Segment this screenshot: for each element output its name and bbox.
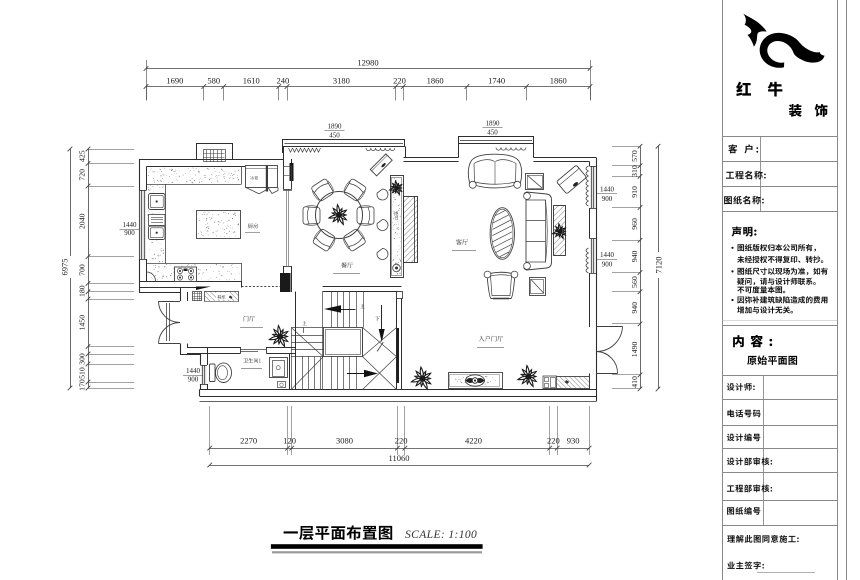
svg-text:11060: 11060: [389, 453, 410, 463]
svg-text:310: 310: [630, 165, 639, 177]
svg-text:6975: 6975: [60, 259, 70, 276]
svg-text:1860: 1860: [550, 76, 567, 86]
svg-text:3180: 3180: [333, 76, 350, 86]
svg-text:700: 700: [78, 264, 87, 276]
svg-text:450: 450: [329, 132, 340, 140]
svg-text:220: 220: [395, 436, 408, 446]
svg-text:1440: 1440: [123, 221, 138, 229]
svg-text:1610: 1610: [243, 76, 260, 86]
svg-text:1440: 1440: [600, 251, 615, 259]
svg-text:960: 960: [630, 218, 639, 230]
svg-text:1450: 1450: [78, 315, 87, 331]
svg-text:1890: 1890: [328, 123, 343, 131]
svg-text:910: 910: [630, 186, 639, 198]
svg-text:170: 170: [78, 379, 87, 391]
svg-text:580: 580: [207, 76, 220, 86]
svg-text:180: 180: [78, 285, 87, 297]
svg-text:510: 510: [78, 367, 87, 379]
svg-text:900: 900: [124, 229, 135, 237]
svg-text:425: 425: [78, 150, 87, 162]
svg-text:940: 940: [630, 302, 639, 314]
svg-text:300: 300: [78, 353, 87, 365]
svg-text:1890: 1890: [486, 120, 501, 128]
svg-text:1440: 1440: [600, 186, 615, 194]
svg-text:7120: 7120: [654, 257, 664, 274]
svg-text:2270: 2270: [240, 436, 257, 446]
svg-text:12980: 12980: [357, 58, 378, 68]
svg-text:4220: 4220: [465, 436, 482, 446]
svg-text:900: 900: [602, 195, 613, 203]
svg-text:1690: 1690: [166, 76, 183, 86]
svg-text:SCALE: 1:100: SCALE: 1:100: [405, 529, 477, 541]
svg-text:900: 900: [188, 376, 199, 384]
svg-text:1440: 1440: [186, 367, 201, 375]
svg-text:1860: 1860: [427, 76, 444, 86]
svg-text:930: 930: [567, 436, 580, 446]
svg-text:940: 940: [630, 250, 639, 262]
svg-text:570: 570: [630, 150, 639, 162]
svg-text:3080: 3080: [336, 436, 353, 446]
svg-text:1740: 1740: [488, 76, 505, 86]
svg-text:1490: 1490: [630, 342, 639, 358]
svg-text:900: 900: [602, 261, 613, 269]
svg-text:220: 220: [393, 76, 406, 86]
svg-text:720: 720: [78, 169, 87, 181]
svg-text:240: 240: [277, 76, 290, 86]
svg-text:120: 120: [283, 436, 296, 446]
svg-text:220: 220: [547, 436, 560, 446]
svg-text:450: 450: [487, 129, 498, 137]
svg-text:560: 560: [630, 276, 639, 288]
svg-text:2040: 2040: [78, 213, 87, 229]
svg-text:410: 410: [630, 376, 639, 388]
